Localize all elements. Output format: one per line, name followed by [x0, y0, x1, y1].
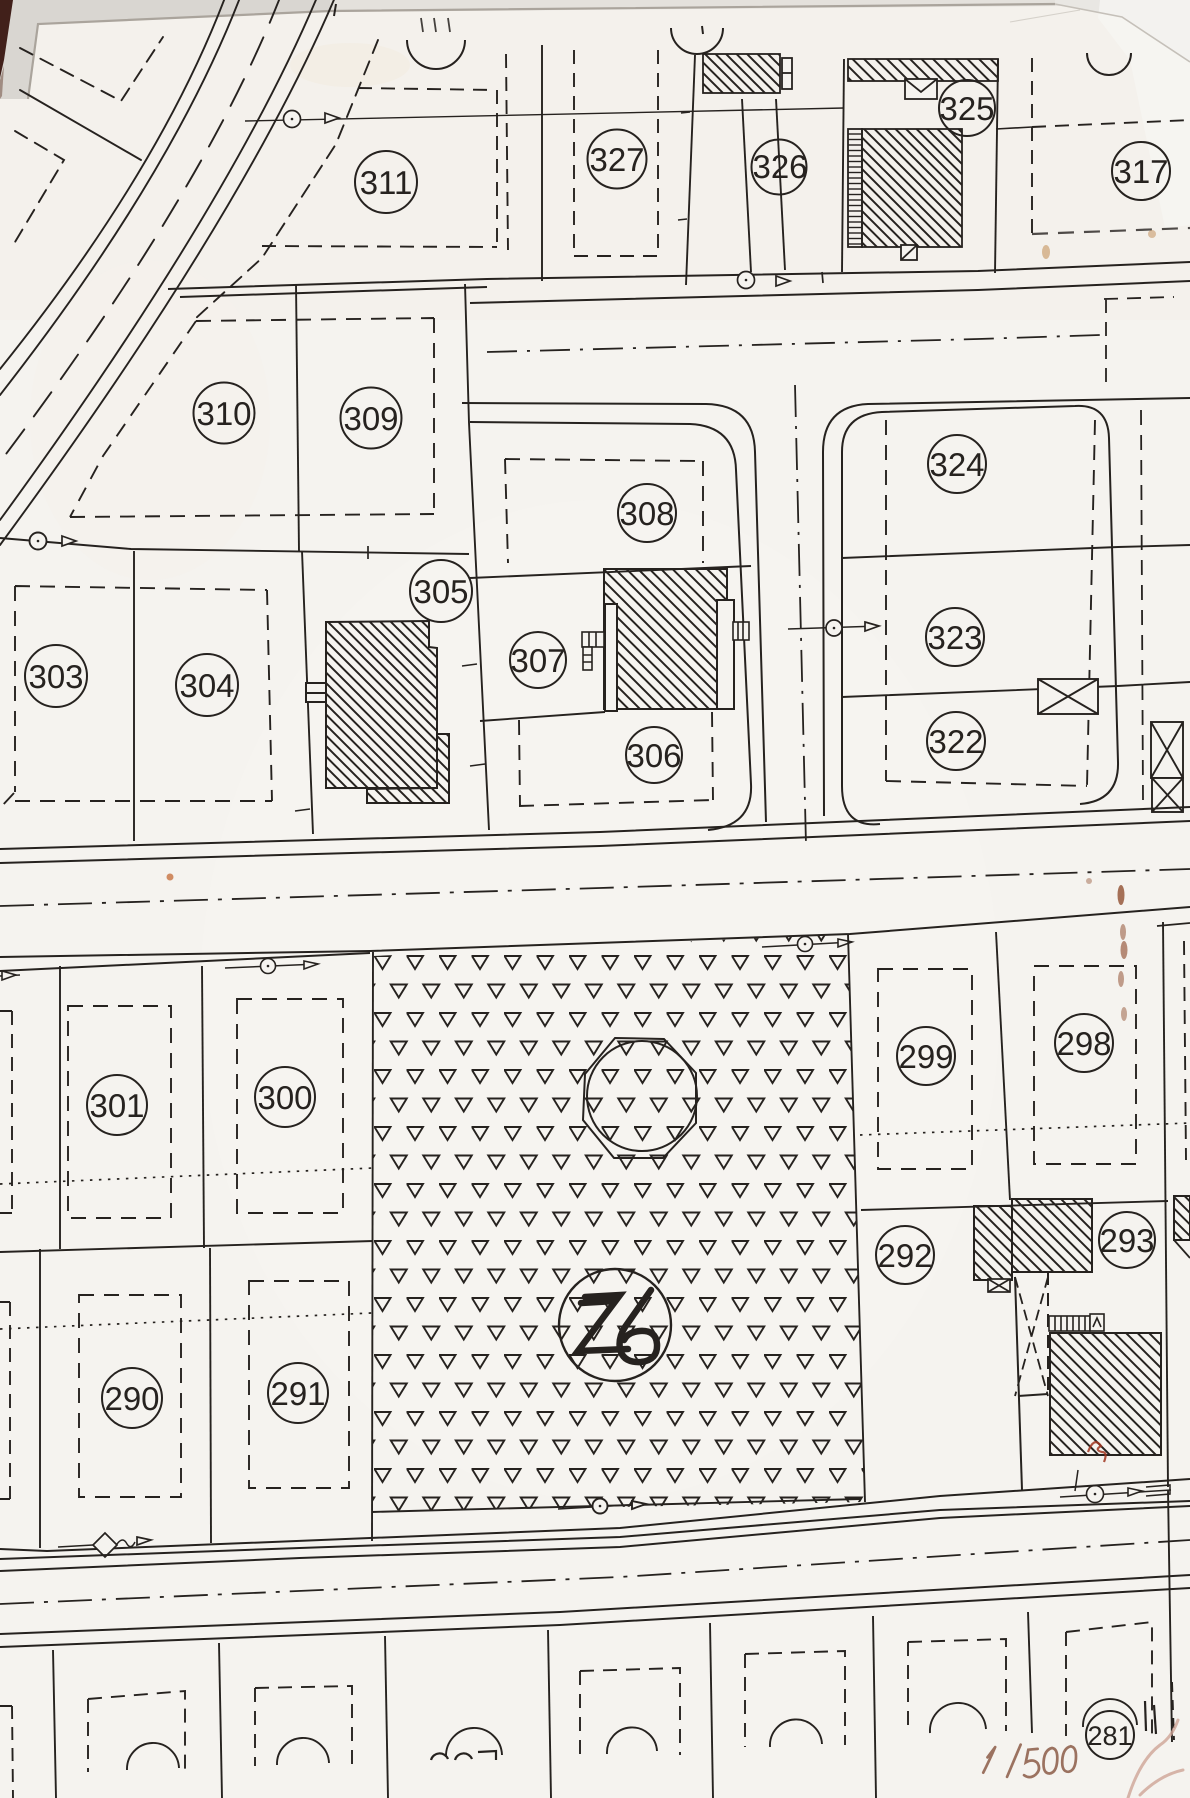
- svg-text:324: 324: [929, 446, 984, 483]
- svg-text:325: 325: [939, 90, 994, 127]
- svg-text:298: 298: [1056, 1025, 1111, 1062]
- svg-text:310: 310: [196, 395, 251, 432]
- svg-text:306: 306: [626, 737, 681, 774]
- svg-text:292: 292: [877, 1237, 932, 1274]
- svg-text:307: 307: [510, 642, 565, 679]
- svg-text:309: 309: [343, 400, 398, 437]
- svg-text:291: 291: [270, 1375, 325, 1412]
- svg-text:301: 301: [89, 1087, 144, 1124]
- svg-text:327: 327: [589, 141, 644, 178]
- svg-text:303: 303: [28, 658, 83, 695]
- svg-text:311: 311: [360, 164, 413, 201]
- svg-text:281: 281: [1087, 1721, 1132, 1751]
- svg-text:299: 299: [898, 1038, 953, 1075]
- svg-text:300: 300: [257, 1079, 312, 1116]
- svg-text:308: 308: [619, 495, 674, 532]
- svg-text:290: 290: [104, 1380, 159, 1417]
- svg-text:323: 323: [927, 619, 982, 656]
- svg-text:317: 317: [1113, 153, 1168, 190]
- svg-text:305: 305: [413, 573, 468, 610]
- svg-text:326: 326: [752, 148, 807, 185]
- svg-text:304: 304: [179, 667, 234, 704]
- svg-text:322: 322: [928, 723, 983, 760]
- svg-text:293: 293: [1099, 1222, 1154, 1259]
